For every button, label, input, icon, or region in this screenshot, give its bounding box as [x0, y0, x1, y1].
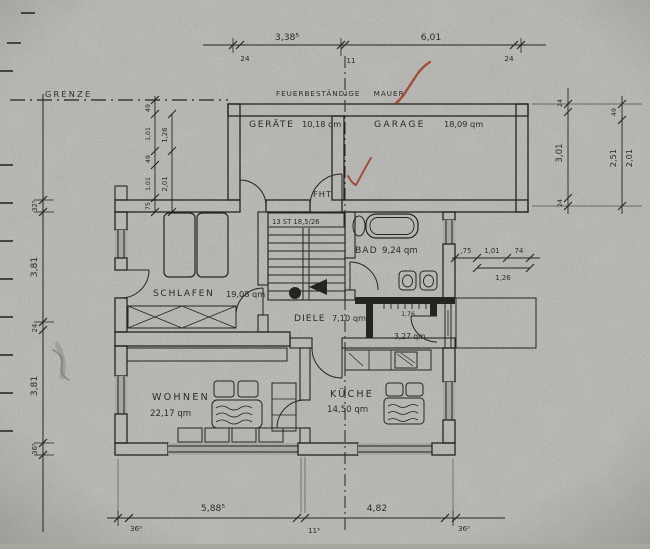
dim-right-5: 2,51: [608, 149, 618, 167]
dim-right-4: 49: [611, 108, 618, 116]
dim-top-2: 6,01: [421, 32, 441, 43]
kitchen-south-window: [358, 443, 432, 455]
dim-entry-4: 1,01: [145, 177, 152, 191]
room-wohnen-area: 22,17 qm: [150, 409, 191, 419]
dim-top-1: 3,38⁵: [275, 32, 299, 43]
dim-right-2: 3,01: [555, 143, 565, 162]
bath-window: [443, 220, 455, 244]
dim-bottom-2: 4,82: [367, 503, 387, 514]
dim-left-2: 3,81: [29, 257, 40, 277]
dim-bw-4: 1,26: [495, 274, 510, 282]
dim-right-3: 24: [557, 199, 564, 207]
dim-top-t1: 24: [240, 54, 250, 63]
room-bad-area: 9,24 qm: [382, 246, 418, 256]
scan-vignette: [0, 0, 650, 544]
room-bad-label: BAD: [355, 245, 378, 256]
firewall-label: FEUERBESTÄNDIGE MAUER: [276, 89, 405, 98]
room-schlafen-area: 19,08 qm: [226, 289, 265, 299]
dim-top-t3: 24: [504, 54, 514, 63]
dim-left-5: 36⁵: [31, 443, 39, 455]
room-geraete-label: GERÄTE: [249, 119, 295, 130]
dim-right-1: 24: [557, 99, 564, 107]
west-window-2: [115, 376, 127, 414]
dim-left-1: 32⁵: [31, 200, 39, 212]
dim-right-6: 2,01: [624, 149, 634, 167]
dim-bottom-t1: 36⁵: [130, 524, 142, 533]
room-diele-label: DIELE: [294, 313, 326, 324]
stair-newel-post: [289, 287, 301, 299]
floor-plan-scan: GRENZE 3,38⁵ 6,01 24 11 24: [0, 0, 650, 544]
stair-label: 13 ST 18,5/26: [272, 218, 320, 226]
room-wohnen-label: WOHNEN: [152, 392, 210, 403]
dim-bw-3: 74: [515, 247, 524, 255]
kitchen-window: [443, 382, 455, 420]
room-kueche-label: KÜCHE: [330, 387, 374, 400]
west-window: [115, 230, 127, 258]
room-wc-area: 3,27 qm: [394, 332, 426, 341]
dim-entry-2: 1,01: [145, 127, 152, 141]
room-schlafen-label: SCHLAFEN: [153, 288, 215, 299]
room-garage-area: 18,09 qm: [444, 119, 483, 129]
dim-entry-3: 49: [145, 155, 152, 163]
dim-left-4: 3,81: [29, 376, 40, 396]
grenze-label: GRENZE: [45, 89, 92, 99]
dim-bw-2: 1,01: [484, 247, 499, 255]
wc-west-wall: [366, 304, 373, 338]
dim-bottom-1: 5,88⁵: [201, 503, 225, 514]
dim-entry-7: 2,01: [161, 176, 169, 191]
dim-entry-1: 49: [145, 104, 152, 112]
living-window: [168, 443, 298, 455]
room-garage-label: GARAGE: [374, 119, 426, 130]
paper-texture: [0, 0, 650, 544]
dim-bottom-t2: 11⁵: [308, 526, 320, 535]
dim-top-t2: 11: [346, 56, 355, 65]
hook-rail-dim: 1,76: [401, 311, 415, 318]
wc-east-wall: [430, 304, 437, 316]
fht-door-label: FHT: [313, 189, 332, 199]
dim-left-3: 24: [31, 324, 39, 333]
room-geraete-area: 10,18 qm: [302, 119, 341, 129]
dim-entry-5: 75: [145, 202, 152, 210]
dim-bw-1: ,75: [461, 247, 472, 255]
dim-entry-6: 1,26: [161, 127, 169, 142]
dim-bottom-t3: 36⁵: [458, 524, 470, 533]
room-diele-area: 7,10 qm: [332, 313, 366, 323]
room-kueche-area: 14,50 qm: [327, 405, 368, 415]
